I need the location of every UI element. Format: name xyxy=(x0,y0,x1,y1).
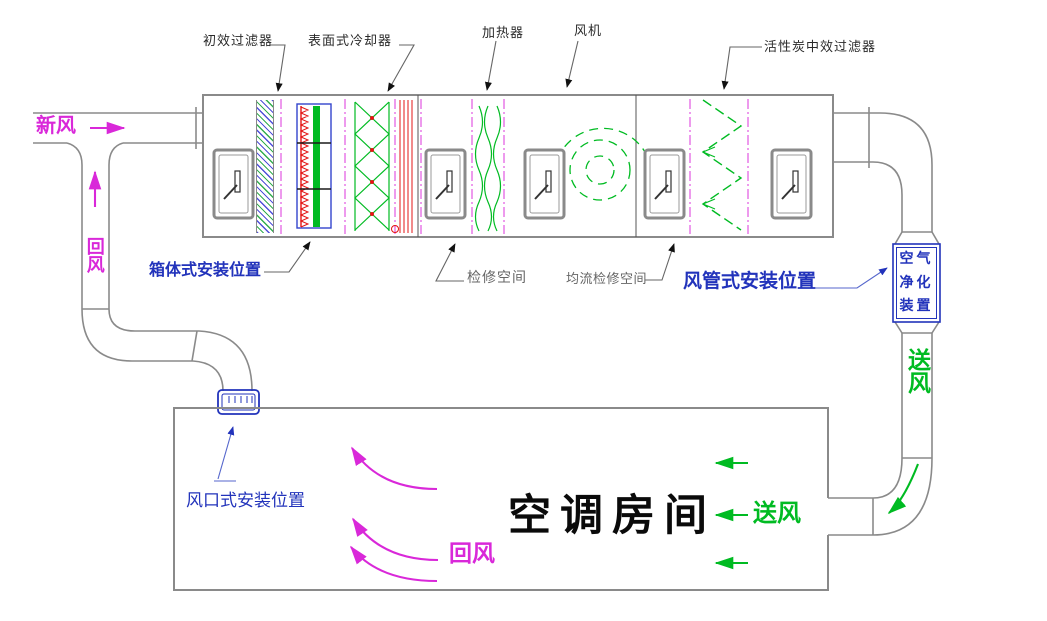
label-duct-install: 风管式安装位置 xyxy=(683,271,816,293)
leader-flow-service-space xyxy=(645,244,674,280)
label-service-space: 检修空间 xyxy=(467,269,527,285)
leader-carbon-filter xyxy=(724,47,762,89)
access-door xyxy=(645,150,684,218)
label-air-purifier: 空气 净化 装置 xyxy=(893,247,940,318)
access-door xyxy=(525,150,564,218)
air-purifier-line1: 空气 xyxy=(893,247,940,271)
label-primary-filter: 初效过滤器 xyxy=(203,34,273,49)
leader-service-space xyxy=(436,244,464,281)
label-grille-install: 风口式安装位置 xyxy=(186,491,305,511)
leader-duct-install xyxy=(812,268,887,288)
air-purifier-line3: 装置 xyxy=(893,294,940,318)
label-carbon-filter: 活性炭中效过滤器 xyxy=(764,40,876,55)
cabinet-purifier-unit xyxy=(297,104,331,228)
leader-primary-filter xyxy=(270,45,285,91)
label-fan: 风机 xyxy=(574,24,602,39)
fan-scroll xyxy=(554,128,645,203)
label-room-return-air: 回风 xyxy=(449,540,495,566)
room-return-arrow xyxy=(352,448,437,489)
label-room-supply-air: 送风 xyxy=(753,500,801,528)
label-surface-cooler: 表面式冷却器 xyxy=(308,34,392,49)
room-return-arrow xyxy=(353,519,438,560)
carbon-filter-pleats xyxy=(703,100,741,230)
leader-heater xyxy=(487,41,496,90)
access-door xyxy=(772,150,811,218)
cooling-coil xyxy=(355,100,412,233)
room-title: 空调房间 xyxy=(508,492,716,541)
hvac-schematic: 初效过滤器 表面式冷却器 加热器 风机 活性炭中效过滤器 新风 回风 箱体式安装… xyxy=(0,0,1047,621)
heater-coil xyxy=(476,106,501,231)
primary-filter-strip xyxy=(256,100,274,233)
leader-fan xyxy=(567,41,578,87)
label-heater: 加热器 xyxy=(482,26,524,41)
label-fresh-air: 新风 xyxy=(36,115,76,138)
label-cabinet-install: 箱体式安装位置 xyxy=(149,262,261,280)
supply-duct xyxy=(828,107,939,535)
access-door xyxy=(214,150,253,218)
leader-surface-cooler xyxy=(388,45,414,91)
ceiling-diffuser xyxy=(218,390,259,414)
label-supply-air-duct: 送风 xyxy=(904,348,930,394)
leader-grille-install xyxy=(218,427,233,479)
air-purifier-line2: 净化 xyxy=(893,271,940,295)
label-flow-service-space: 均流检修空间 xyxy=(566,272,647,287)
label-return-air-duct: 回风 xyxy=(84,237,105,273)
leader-cabinet-install xyxy=(264,242,310,272)
access-door xyxy=(426,150,465,218)
